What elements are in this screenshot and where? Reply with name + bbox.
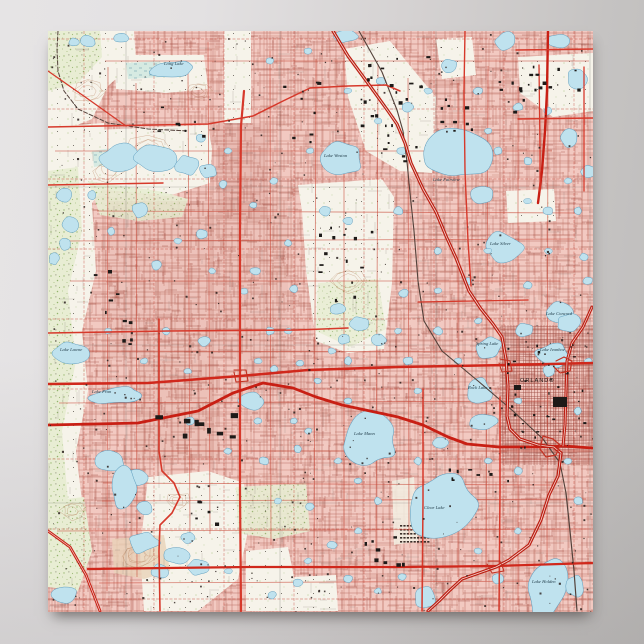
svg-text:Clear Lake: Clear Lake (424, 505, 445, 510)
svg-text:Lake Silver: Lake Silver (489, 241, 511, 246)
svg-text:Spring Lake: Spring Lake (476, 341, 498, 346)
svg-text:ORLANDO: ORLANDO (520, 378, 555, 384)
svg-text:Rock Lake: Rock Lake (467, 385, 487, 390)
svg-text:Lake Weston: Lake Weston (323, 153, 348, 158)
svg-text:Lake Mann: Lake Mann (353, 431, 375, 436)
svg-text:Lake Fairview: Lake Fairview (432, 177, 461, 182)
svg-text:Lake Ivanhoe: Lake Ivanhoe (539, 347, 565, 352)
svg-text:Lake Lawne: Lake Lawne (59, 347, 82, 352)
svg-text:Lake Holden: Lake Holden (531, 579, 556, 584)
svg-text:Lake Fran: Lake Fran (91, 389, 112, 394)
svg-text:Lake Concord: Lake Concord (545, 311, 573, 316)
svg-text:Long Lake: Long Lake (163, 61, 184, 66)
